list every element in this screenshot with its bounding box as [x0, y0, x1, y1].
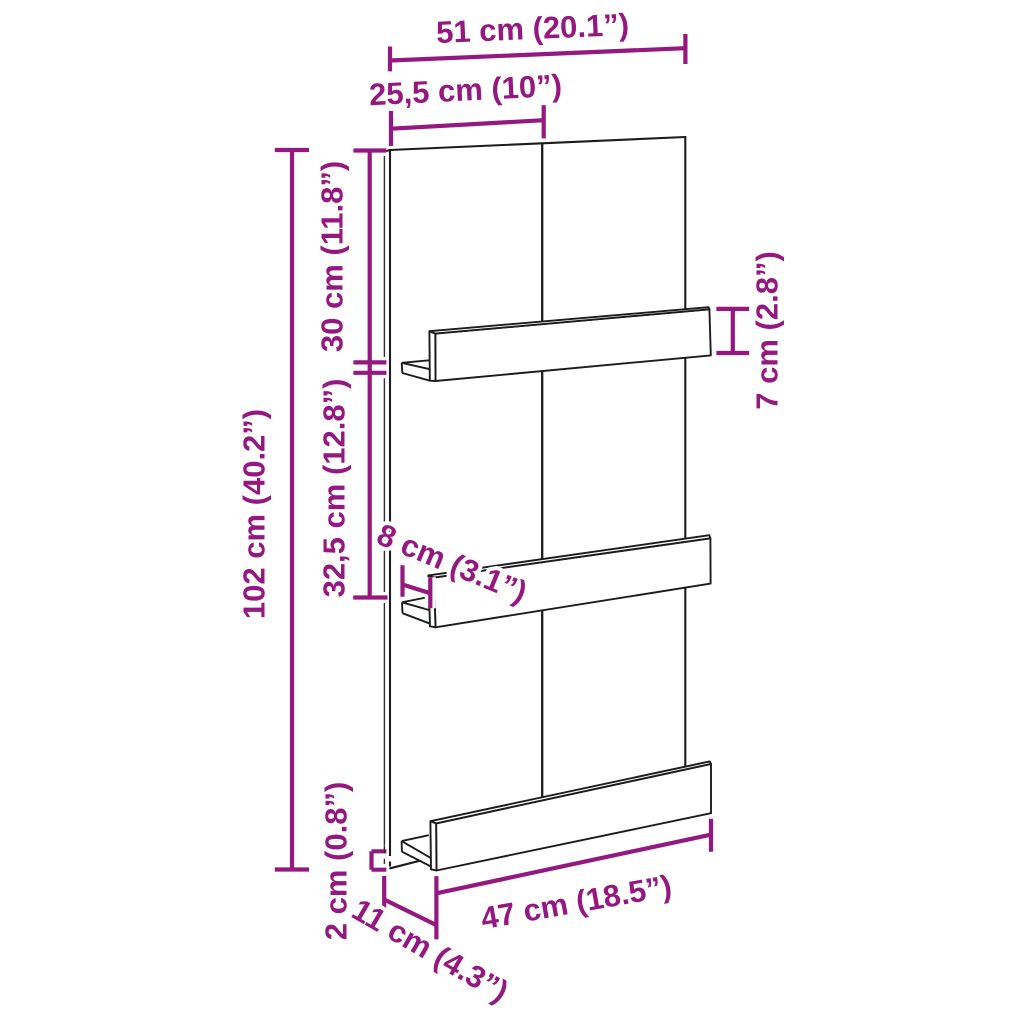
- svg-text:102 cm (40.2”): 102 cm (40.2”): [237, 409, 272, 619]
- svg-text:7 cm (2.8”): 7 cm (2.8”): [750, 251, 785, 410]
- svg-text:32,5 cm (12.8”): 32,5 cm (12.8”): [317, 379, 352, 598]
- svg-text:30 cm (11.8”): 30 cm (11.8”): [315, 161, 350, 352]
